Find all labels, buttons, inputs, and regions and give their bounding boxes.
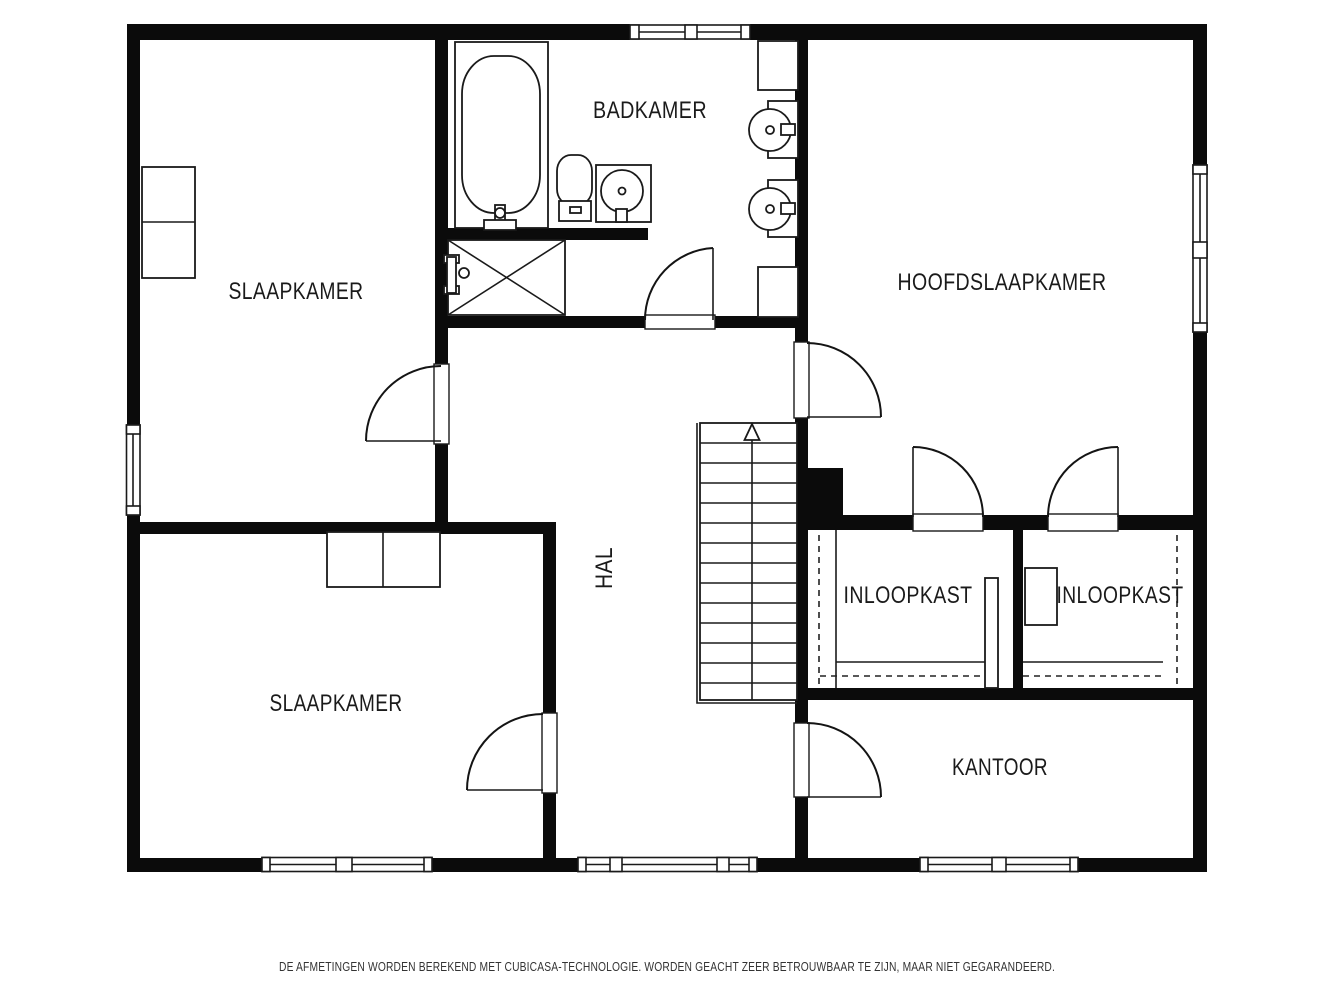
- wall-segment: [1118, 515, 1193, 530]
- wall-segment: [432, 858, 578, 872]
- room-label-hal: HAL: [591, 547, 618, 589]
- shower-icon: [444, 240, 565, 315]
- door-kantoor: [794, 723, 881, 797]
- room-label-kantoor: KANTOOR: [952, 754, 1048, 781]
- walls: [127, 24, 1207, 872]
- wall-segment: [435, 443, 448, 532]
- floorplan-svg: SLAAPKAMER BADKAMER HOOFDSLAAPKAMER HAL …: [0, 0, 1333, 1000]
- wall-segment: [808, 468, 843, 517]
- wall-segment: [448, 228, 648, 240]
- wardrobe-icon: [142, 167, 195, 278]
- closet-detail-right: [1023, 535, 1177, 684]
- room-label-inloopkast-left: INLOOPKAST: [844, 582, 973, 609]
- door-slaapkamer-bottom: [467, 713, 557, 793]
- round-basin-icon: [749, 101, 798, 158]
- wall-segment: [127, 515, 140, 872]
- wall-segment: [795, 797, 808, 858]
- wall-segment: [1193, 332, 1207, 872]
- wall-segment: [1013, 530, 1023, 700]
- counter-icon: [758, 41, 798, 317]
- window-right: [1193, 165, 1207, 332]
- wall-segment: [127, 858, 262, 872]
- wall-segment: [750, 24, 1207, 40]
- round-basin-icon: [749, 180, 798, 237]
- wall-segment: [808, 515, 913, 530]
- door-slaapkamer-top: [366, 364, 449, 444]
- room-label-hoofdslaapkamer: HOOFDSLAAPKAMER: [898, 269, 1107, 296]
- room-label-slaapkamer-top: SLAAPKAMER: [229, 278, 364, 305]
- wall-segment: [435, 316, 645, 328]
- wall-segment: [543, 792, 556, 858]
- sink-icon: [596, 165, 651, 222]
- toilet-icon: [557, 155, 592, 221]
- door-inloopkast-left: [913, 447, 983, 531]
- wall-segment: [757, 858, 920, 872]
- door-inloopkast-right: [1048, 447, 1118, 531]
- closet-detail-left: [819, 530, 998, 688]
- window-bottom-hal: [578, 858, 757, 872]
- stairs-icon: [697, 423, 797, 703]
- bathtub-icon: [455, 42, 548, 230]
- windows: [127, 25, 1208, 872]
- window-left: [127, 425, 141, 515]
- floorplan-page: SLAAPKAMER BADKAMER HOOFDSLAAPKAMER HAL …: [0, 0, 1333, 1000]
- room-label-slaapkamer-bottom: SLAAPKAMER: [270, 690, 403, 717]
- wardrobe-icon: [327, 532, 440, 587]
- room-label-inloopkast-right: INLOOPKAST: [1057, 582, 1184, 609]
- window-top: [630, 25, 750, 39]
- wall-segment: [795, 688, 1193, 700]
- window-bottom-slaapkamer: [262, 858, 432, 872]
- wall-segment: [543, 534, 556, 713]
- room-label-badkamer: BADKAMER: [593, 97, 707, 124]
- wall-segment: [127, 24, 140, 425]
- door-hoofdslaapkamer: [794, 342, 881, 418]
- wall-segment: [1193, 24, 1207, 165]
- wall-segment: [983, 515, 1048, 530]
- door-badkamer: [645, 248, 715, 329]
- wall-segment: [127, 24, 630, 40]
- wall-segment: [1078, 858, 1207, 872]
- wall-segment: [795, 316, 808, 342]
- window-bottom-kantoor: [920, 858, 1078, 872]
- footer-disclaimer: DE AFMETINGEN WORDEN BEREKEND MET CUBICA…: [279, 959, 1055, 974]
